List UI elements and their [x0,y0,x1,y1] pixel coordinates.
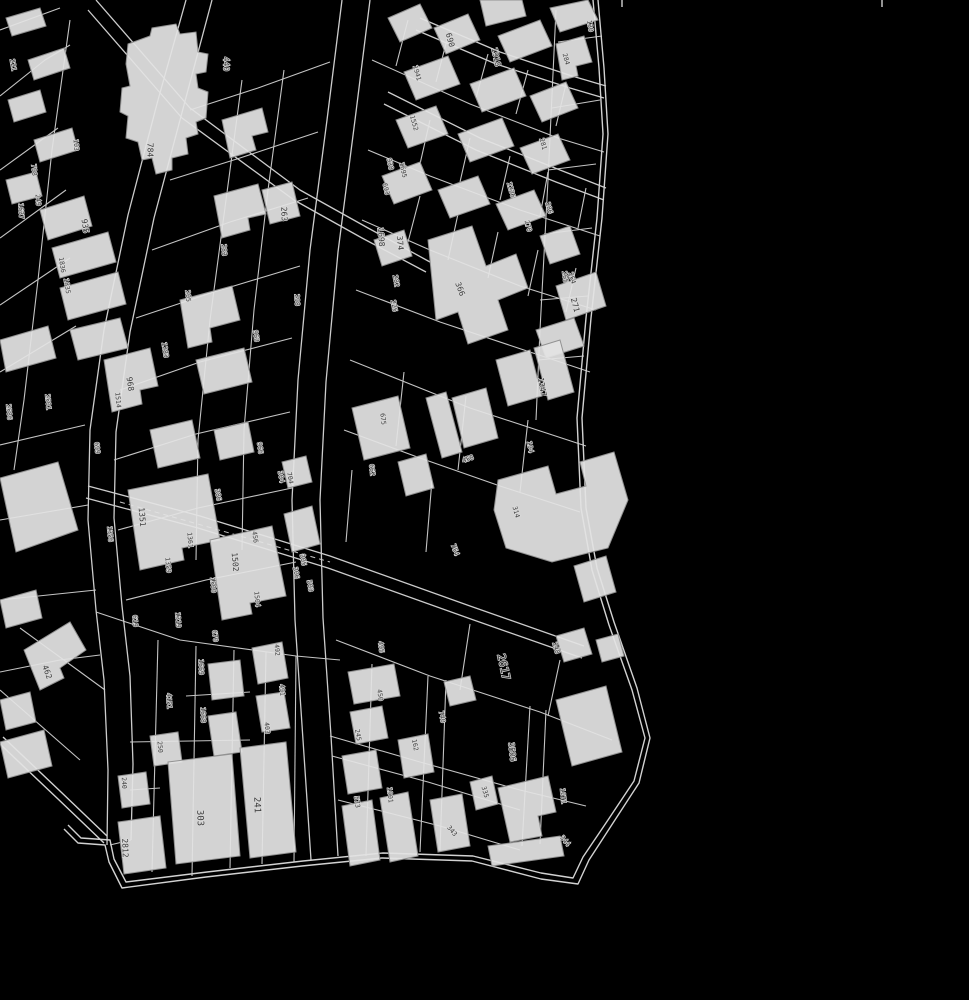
parcel-number-label: 1504 [252,591,261,607]
parcel-number-label: 798 [30,164,39,176]
parcel-number-label: 662 [367,464,376,477]
parcel-number-label: 1359 [163,557,172,573]
parcel-number-label: 4151 [165,693,174,709]
parcel-number-label: 1319 [173,612,182,628]
parcel-number-label: 205 [184,290,193,302]
building-footprint [240,742,296,858]
building-footprint [256,692,290,732]
parcel-number-label: 675 [378,413,387,426]
parcel-number-label: 303 [194,810,205,827]
parcel-number-label: 1502 [230,552,241,572]
parcel-number-label: 573 [352,796,362,809]
parcel-number-label: 249 [34,194,43,206]
parcel-number-label: 374 [395,235,405,250]
cadastral-map[interactable]: 7844402217981637249103935183618352632832… [0,0,969,1000]
parcel-number-label: 699 [92,442,101,455]
parcel-number-label: 403 [263,722,272,734]
parcel-number-label: 283 [220,244,228,256]
parcel-number-label: 1669 [197,659,206,675]
parcel-number-label: 1500 [208,577,217,593]
parcel-number-label: 670 [210,630,219,643]
building-footprint [208,712,242,756]
parcel-number-label: 1668 [199,707,208,723]
parcel-number-label: 250 [156,741,165,753]
parcel-number-label: 963 [251,330,261,343]
parcel-number-label: 1351 [137,507,148,527]
building-footprint [444,676,476,706]
parcel-number-label: 619 [131,615,140,627]
parcel-number-label: 1361 [185,532,194,548]
parcel-number-label: 1514 [113,392,122,408]
cadastral-map-stage: 7844402217981637249103935183618352632832… [0,0,969,1000]
parcel-number-label: 1356 [105,526,114,542]
parcel-number-label: 103 [72,139,81,151]
parcel-number-label: 265 [560,271,570,284]
parcel-number-label: 298 [293,294,301,306]
parcel-number-label: 492 [273,644,282,656]
parcel-number-label: 263 [279,207,289,222]
parcel-number-label: 1071 [558,788,568,804]
parcel-number-label: 495 [376,641,386,654]
parcel-number-label: 1901 [385,787,395,803]
parcel-number-label: 966 [255,442,265,455]
parcel-number-label: 240 [120,777,129,789]
building-footprint [252,642,288,684]
parcel-number-label: 456 [250,531,260,544]
parcel-number-label: 2501 [43,394,52,410]
parcel-number-label: 2812 [120,838,130,858]
parcel-number-label: 1637 [17,203,26,219]
parcel-number-label: 1698 [376,227,387,247]
building-footprint [208,660,244,700]
parcel-number-label: 2586 [4,404,13,420]
parcel-number-label: 241 [251,797,262,814]
building-footprint [342,750,382,794]
parcel-number-label: 491 [278,684,287,696]
parcel-number-label: 784 [146,143,155,158]
parcel-number-label: 440 [222,57,231,72]
parcel-number-label: 450 [375,689,385,702]
